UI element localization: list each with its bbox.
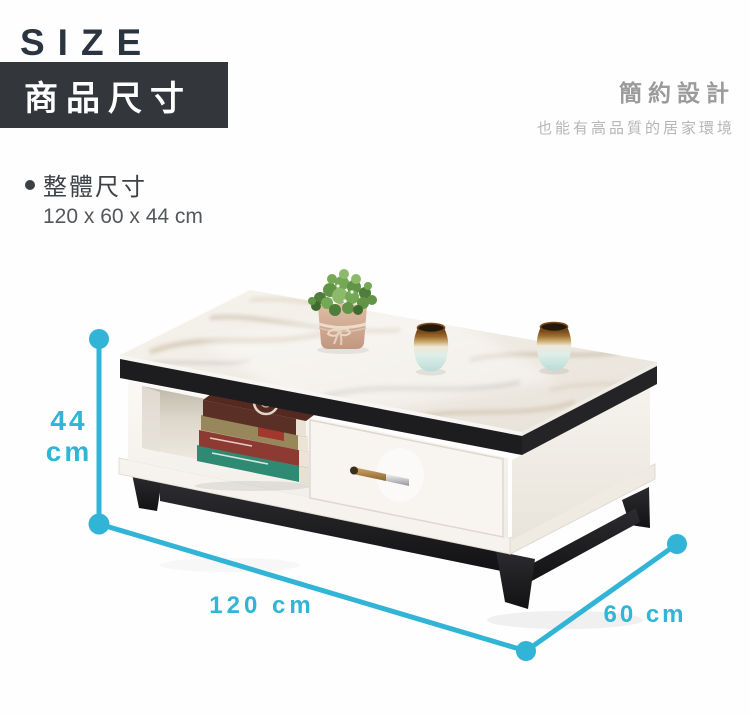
product-dimensions-banner: 商品尺寸 (0, 62, 228, 128)
size-heading: SIZE (20, 22, 154, 64)
dimension-dot (516, 641, 536, 661)
product-dimensions-label: 商品尺寸 (0, 71, 192, 120)
depth-dimension-label: 60 cm (586, 601, 704, 629)
dimension-dot (667, 534, 687, 554)
length-dimension-label: 120 cm (188, 592, 336, 620)
height-value: 44 (36, 405, 102, 436)
height-dimension-label: 44 cm (36, 405, 102, 468)
coffee-table (119, 269, 657, 609)
dimension-dot (89, 514, 110, 535)
height-unit: cm (36, 436, 102, 467)
overall-size-label: 整體尺寸 (43, 167, 147, 202)
design-tagline-subtitle: 也能有高品質的居家環境 (537, 117, 735, 138)
bullet-dot (25, 180, 35, 190)
dimension-dot (89, 329, 109, 349)
design-tagline: 簡約設計 也能有高品質的居家環境 (537, 74, 735, 138)
design-tagline-title: 簡約設計 (537, 74, 735, 108)
overall-size-spec: 整體尺寸 120 x 60 x 44 cm (25, 167, 203, 229)
overall-size-value: 120 x 60 x 44 cm (43, 205, 203, 229)
